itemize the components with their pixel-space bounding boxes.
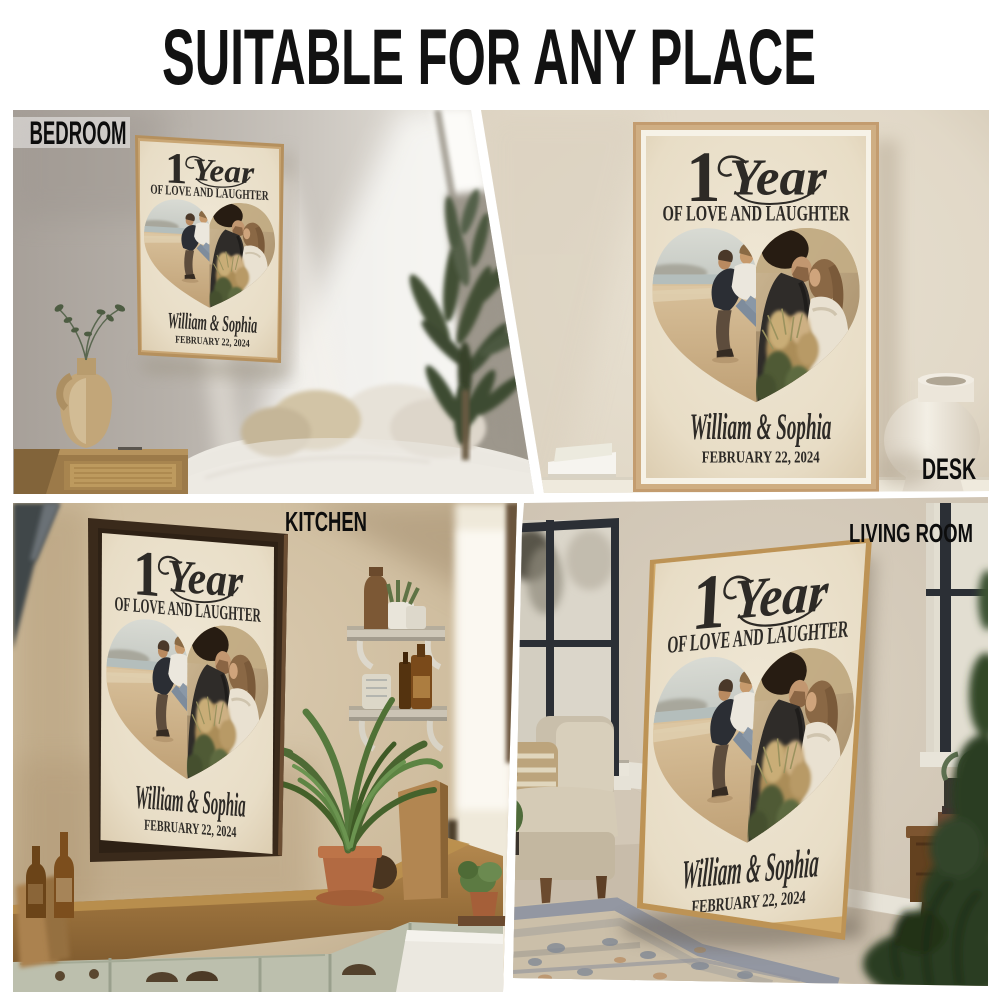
svg-text:KITCHEN: KITCHEN (285, 506, 367, 537)
svg-text:BEDROOM: BEDROOM (30, 115, 127, 151)
svg-text:LIVING ROOM: LIVING ROOM (849, 518, 973, 548)
svg-text:SUITABLE FOR ANY PLACE: SUITABLE FOR ANY PLACE (162, 12, 816, 101)
svg-text:DESK: DESK (922, 453, 976, 486)
